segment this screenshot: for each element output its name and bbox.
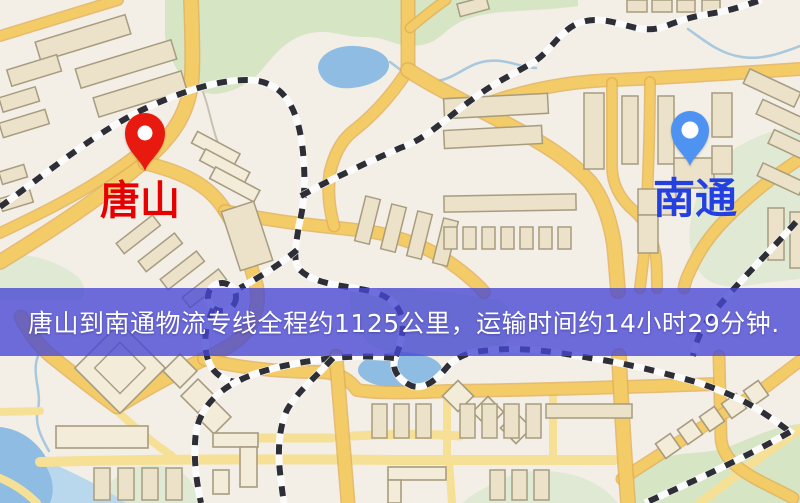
origin-pin-icon bbox=[119, 109, 171, 173]
route-info-text: 唐山到南通物流专线全程约1125公里，运输时间约14小时29分钟. bbox=[28, 304, 780, 340]
origin-label: 唐山 bbox=[100, 180, 180, 222]
map-canvas bbox=[0, 0, 800, 503]
route-info-banner: 唐山到南通物流专线全程约1125公里，运输时间约14小时29分钟. bbox=[0, 288, 800, 356]
destination-marker bbox=[666, 108, 714, 168]
destination-pin-icon bbox=[666, 108, 714, 168]
destination-label: 南通 bbox=[653, 177, 737, 221]
origin-marker bbox=[119, 109, 171, 173]
map-screenshot: 唐山 南通 唐山到南通物流专线全程约1125公里，运输时间约14小时29分钟. bbox=[0, 0, 800, 503]
